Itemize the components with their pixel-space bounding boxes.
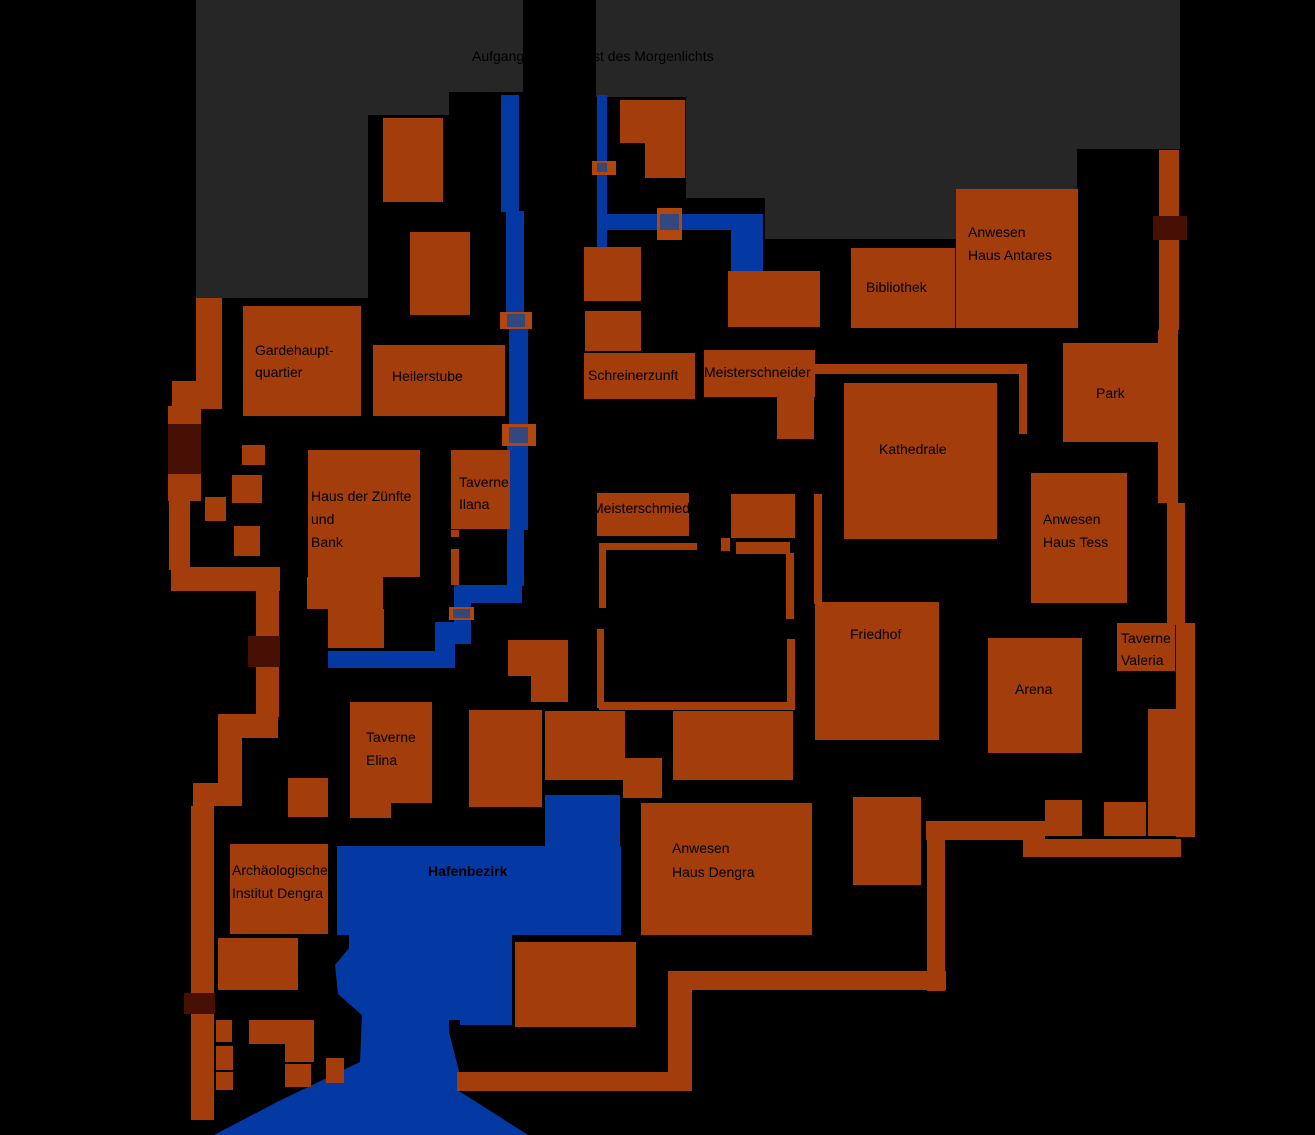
svg-text:Bank: Bank: [311, 534, 344, 550]
svg-text:Haus der Zünfte: Haus der Zünfte: [311, 488, 412, 504]
svg-text:Anwesen: Anwesen: [672, 840, 730, 856]
svg-text:Friedhof: Friedhof: [850, 626, 901, 642]
svg-text:Elina: Elina: [366, 752, 397, 768]
svg-text:Taverne: Taverne: [459, 474, 509, 490]
svg-text:Haus Tess: Haus Tess: [1043, 534, 1108, 550]
svg-text:Meisterschmied: Meisterschmied: [592, 500, 690, 516]
svg-text:Taverne: Taverne: [366, 729, 416, 745]
svg-text:st des Morgenlichts: st des Morgenlichts: [593, 48, 714, 64]
svg-text:quartier: quartier: [255, 364, 303, 380]
svg-text:Heilerstube: Heilerstube: [392, 368, 463, 384]
svg-text:und: und: [311, 511, 334, 527]
svg-text:Park: Park: [1096, 385, 1126, 401]
svg-text:Haus Dengra: Haus Dengra: [672, 864, 755, 880]
svg-text:Anwesen: Anwesen: [968, 224, 1026, 240]
svg-text:Hafenbezirk: Hafenbezirk: [428, 863, 508, 879]
svg-text:Archäologisches: Archäologisches: [232, 862, 335, 878]
svg-text:Bibliothek: Bibliothek: [866, 279, 928, 295]
svg-text:Institut Dengra: Institut Dengra: [232, 885, 323, 901]
svg-text:Valeria: Valeria: [1121, 652, 1164, 668]
svg-text:Anwesen: Anwesen: [1043, 511, 1101, 527]
svg-text:Schreinerzunft: Schreinerzunft: [588, 367, 678, 383]
svg-text:Ilana: Ilana: [459, 496, 490, 512]
svg-text:Meisterschneider: Meisterschneider: [704, 364, 811, 380]
svg-text:Haus Antares: Haus Antares: [968, 247, 1052, 263]
svg-text:Gardehaupt-: Gardehaupt-: [255, 342, 334, 358]
svg-text:Aufgang: Aufgang: [472, 48, 524, 64]
svg-text:Taverne: Taverne: [1121, 630, 1171, 646]
svg-text:Kathedrale: Kathedrale: [879, 441, 947, 457]
svg-text:Arena: Arena: [1015, 681, 1053, 697]
